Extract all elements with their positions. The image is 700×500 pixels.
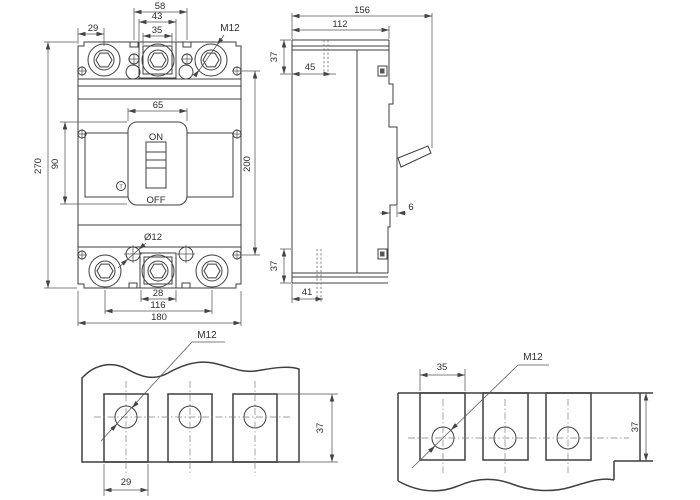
dim-35-detail: 35: [437, 362, 448, 373]
dim-65-label: 65: [153, 100, 164, 111]
strip-outline: [82, 362, 299, 462]
toggle-handle: [146, 142, 166, 188]
terminal-pads: [94, 381, 291, 476]
dim-28-label: 28: [153, 288, 164, 299]
dim-180-label: 180: [151, 312, 167, 323]
terminal-detail-left: M12 37 29: [82, 330, 338, 496]
side-view: 156 112 37 45 6 37 41: [269, 5, 432, 303]
switch-area: T ON OFF: [85, 122, 233, 206]
front-dimensions-bottom: Ø12 28 116 180: [78, 232, 241, 326]
detail-right-annotations: M12 35 37: [412, 352, 646, 468]
dim-43-label: 43: [152, 11, 163, 22]
hidden-hole-top: [324, 40, 328, 76]
dim-6-label: 6: [408, 202, 413, 213]
dim-270-label: 270: [33, 158, 44, 174]
dim-45-label: 45: [305, 62, 316, 73]
side-right-profile: [388, 40, 397, 273]
thread-callout-m12: M12: [220, 23, 240, 34]
terminal-pads-right: [408, 393, 629, 473]
dim-37-bottom-label: 37: [269, 261, 280, 272]
thread-callout-m12-left: M12: [197, 330, 217, 341]
dim-29-detail: 29: [121, 477, 132, 488]
dim-29-label: 29: [88, 23, 99, 34]
front-view: T ON OFF 58 43 35 29 M12 65: [33, 1, 260, 326]
dim-41-label: 41: [302, 287, 313, 298]
dim-37-top-label: 37: [269, 52, 280, 63]
switch-on-label: ON: [149, 132, 163, 143]
thread-callout-m12-right: M12: [523, 352, 543, 363]
dim-90-label: 90: [50, 159, 61, 170]
handle-ridges: [146, 152, 166, 168]
clip-screw-bottom: [380, 252, 385, 257]
drawing-canvas: T ON OFF 58 43 35 29 M12 65: [0, 0, 700, 500]
switch-off-label: OFF: [147, 195, 166, 206]
strip-outline-right: [398, 393, 653, 491]
cover-screws: [77, 66, 242, 260]
dim-112-label: 112: [332, 19, 347, 30]
side-body-outline: [292, 40, 431, 302]
dim-156-label: 156: [354, 5, 370, 16]
terminal-detail-right: M12 35 37: [398, 352, 653, 491]
side-toggle-handle: [398, 146, 431, 167]
hole-callout-dia12: Ø12: [144, 232, 162, 243]
dim-35-label: 35: [152, 25, 163, 36]
dim-37-left-detail: 37: [315, 423, 326, 434]
clip-screw-top: [380, 69, 385, 74]
technical-drawing: T ON OFF 58 43 35 29 M12 65: [0, 0, 700, 500]
dim-116-label: 116: [150, 300, 165, 311]
trip-button-label: T: [119, 185, 123, 191]
hidden-hole-bottom: [317, 249, 321, 302]
bottom-terminals: [89, 245, 228, 288]
right-panel: [187, 133, 233, 197]
dim-200-label: 200: [242, 156, 253, 172]
dim-37-right-detail: 37: [630, 422, 641, 433]
